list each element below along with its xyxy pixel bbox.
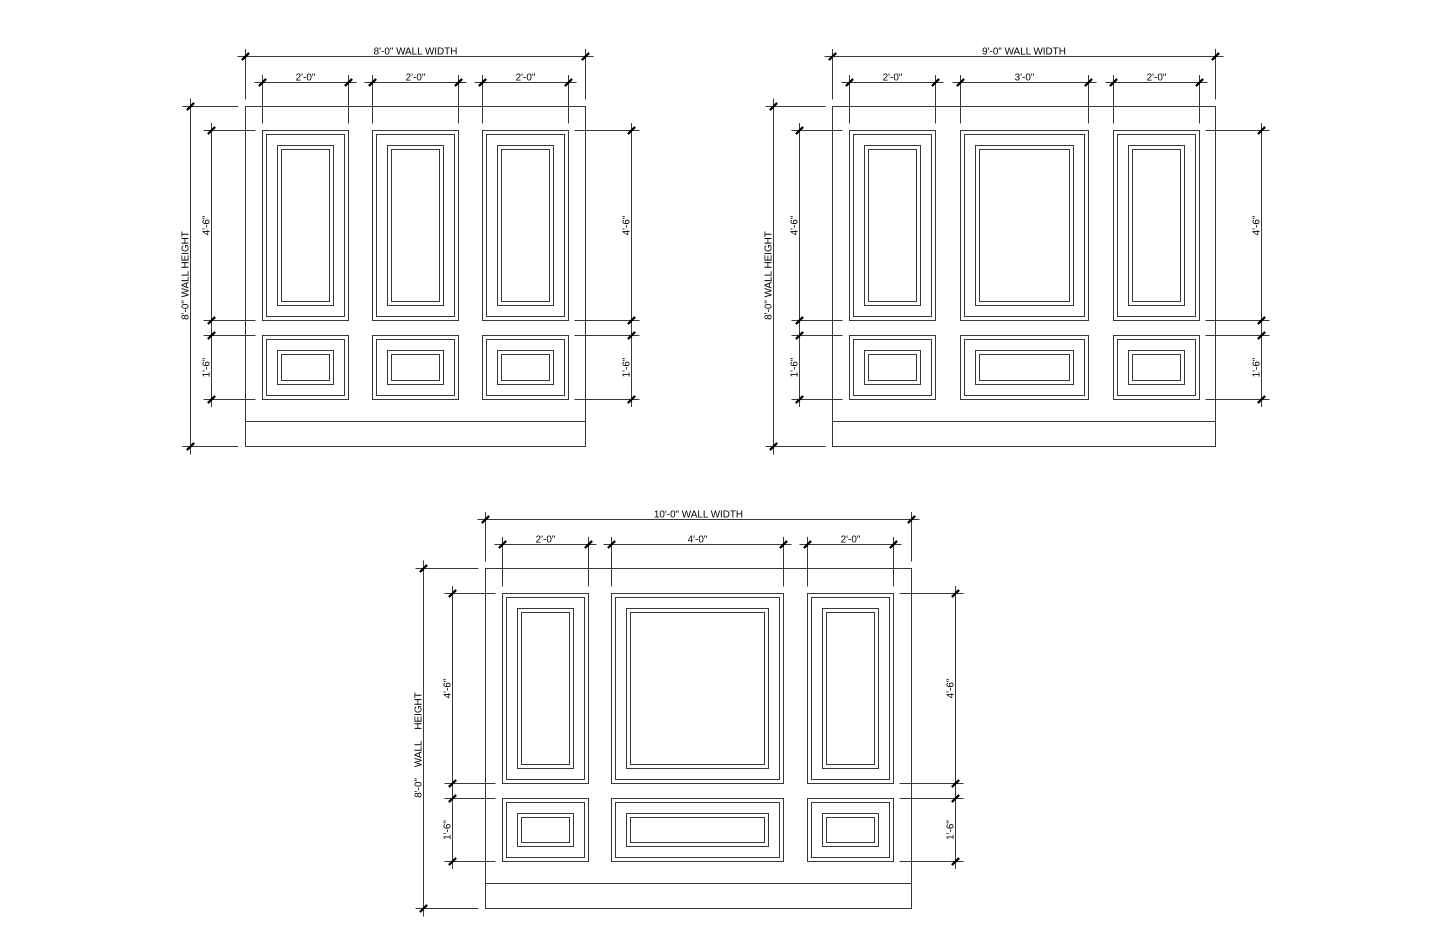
svg-text:10'-0" WALL WIDTH: 10'-0" WALL WIDTH bbox=[654, 509, 743, 520]
svg-text:1'-6": 1'-6" bbox=[1251, 357, 1262, 377]
svg-text:8'-0" WALL WIDTH: 8'-0" WALL WIDTH bbox=[374, 46, 458, 57]
svg-text:2'-0": 2'-0" bbox=[883, 72, 903, 83]
svg-text:4'-6": 4'-6" bbox=[442, 678, 453, 698]
svg-text:2'-0": 2'-0" bbox=[516, 72, 536, 83]
svg-text:3'-0": 3'-0" bbox=[1015, 72, 1035, 83]
svg-text:4'-6": 4'-6" bbox=[945, 678, 956, 698]
svg-text:1'-6": 1'-6" bbox=[201, 357, 212, 377]
svg-text:1'-6": 1'-6" bbox=[442, 820, 453, 840]
svg-text:1'-6": 1'-6" bbox=[789, 357, 800, 377]
svg-text:4'-6": 4'-6" bbox=[201, 215, 212, 235]
svg-text:8'-0" WALL HEIGHT: 8'-0" WALL HEIGHT bbox=[763, 231, 774, 320]
svg-text:9'-0" WALL WIDTH: 9'-0" WALL WIDTH bbox=[982, 46, 1066, 57]
svg-text:4'-6": 4'-6" bbox=[1251, 215, 1262, 235]
svg-text:8'-0" WALL HEIGHT: 8'-0" WALL HEIGHT bbox=[413, 692, 424, 797]
svg-text:1'-6": 1'-6" bbox=[621, 357, 632, 377]
svg-text:2'-0": 2'-0" bbox=[1147, 72, 1167, 83]
svg-text:4'-0": 4'-0" bbox=[688, 534, 708, 545]
svg-text:2'-0": 2'-0" bbox=[536, 534, 556, 545]
svg-text:4'-6": 4'-6" bbox=[789, 215, 800, 235]
svg-text:8'-0" WALL HEIGHT: 8'-0" WALL HEIGHT bbox=[180, 231, 191, 320]
svg-text:1'-6": 1'-6" bbox=[945, 820, 956, 840]
svg-text:2'-0": 2'-0" bbox=[406, 72, 426, 83]
svg-text:4'-6": 4'-6" bbox=[621, 215, 632, 235]
svg-text:2'-0": 2'-0" bbox=[841, 534, 861, 545]
svg-text:2'-0": 2'-0" bbox=[296, 72, 316, 83]
